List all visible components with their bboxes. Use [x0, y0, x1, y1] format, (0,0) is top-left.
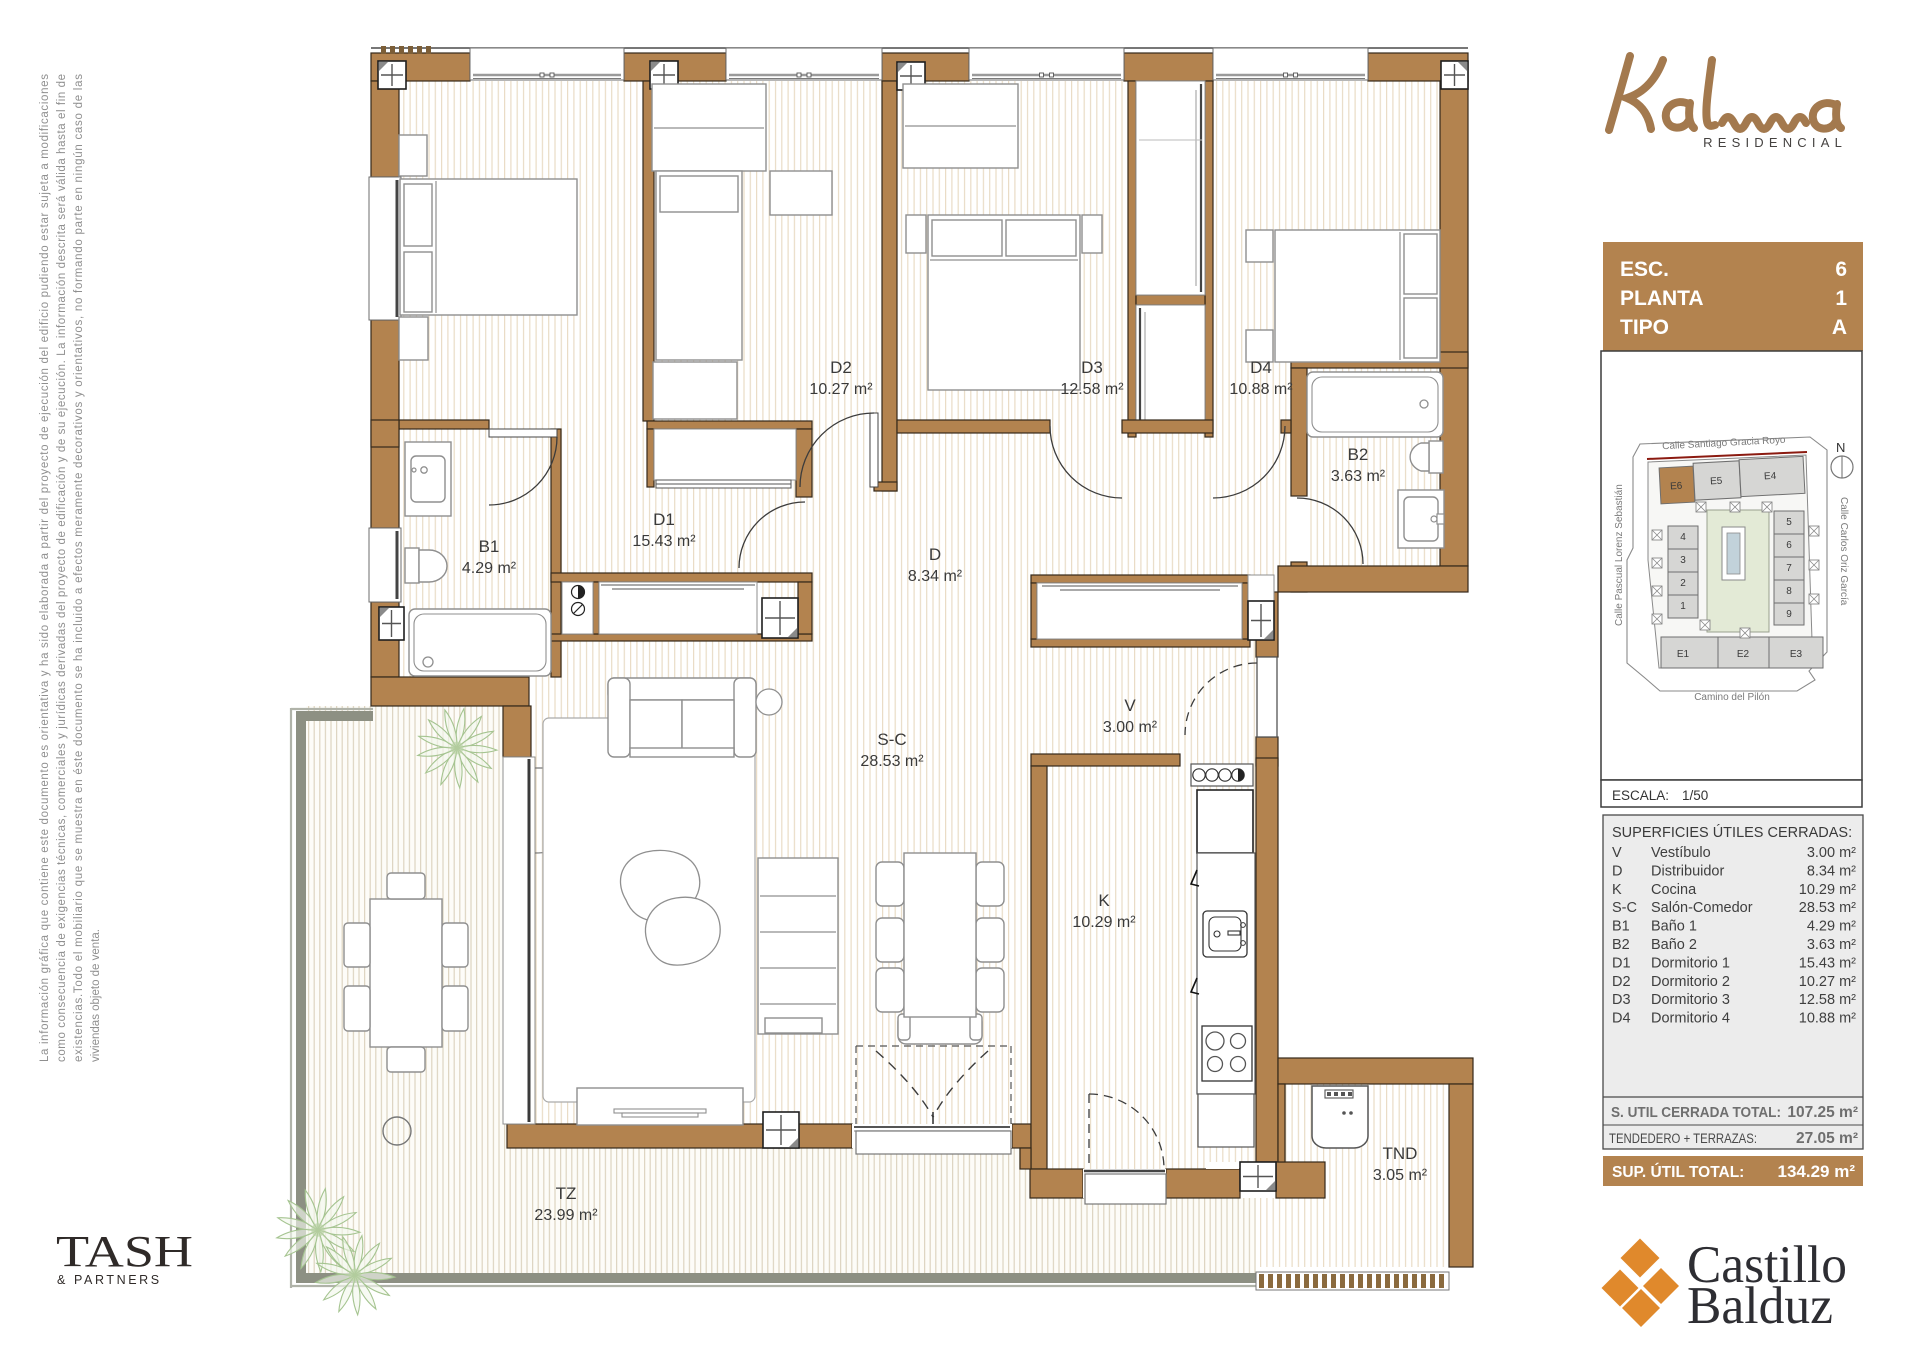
svg-text:Baño 2: Baño 2 — [1651, 937, 1697, 953]
svg-text:23.99 m²: 23.99 m² — [534, 1207, 598, 1224]
svg-text:10.88 m²: 10.88 m² — [1229, 381, 1293, 398]
svg-text:K: K — [1612, 882, 1622, 898]
svg-text:4.29 m²: 4.29 m² — [1807, 919, 1856, 935]
svg-text:107.25 m²: 107.25 m² — [1787, 1104, 1858, 1121]
svg-text:Cocina: Cocina — [1651, 882, 1697, 898]
svg-text:Dormitorio 4: Dormitorio 4 — [1651, 1011, 1730, 1027]
svg-text:D3: D3 — [1081, 358, 1103, 377]
svg-text:8.34 m²: 8.34 m² — [1807, 863, 1856, 879]
svg-text:3.00 m²: 3.00 m² — [1807, 845, 1856, 861]
svg-text:K: K — [1098, 891, 1110, 910]
svg-text:134.29 m²: 134.29 m² — [1778, 1162, 1856, 1181]
svg-text:D2: D2 — [830, 358, 852, 377]
svg-text:A: A — [1832, 316, 1847, 339]
svg-text:V: V — [1612, 845, 1622, 861]
svg-text:Balduz: Balduz — [1687, 1277, 1833, 1335]
svg-text:1: 1 — [1835, 287, 1847, 310]
svg-text:Salón-Comedor: Salón-Comedor — [1651, 900, 1753, 916]
svg-text:TENDEDERO + TERRAZAS:: TENDEDERO + TERRAZAS: — [1609, 1131, 1757, 1146]
svg-text:D1: D1 — [653, 510, 675, 529]
svg-text:9: 9 — [1786, 609, 1792, 620]
svg-text:ESC.: ESC. — [1620, 258, 1669, 281]
svg-text:8.34 m²: 8.34 m² — [908, 568, 963, 585]
svg-text:RESIDENCIAL: RESIDENCIAL — [1703, 135, 1847, 150]
svg-text:SUP. ÚTIL TOTAL:: SUP. ÚTIL TOTAL: — [1612, 1163, 1744, 1181]
svg-text:10.27 m²: 10.27 m² — [1799, 974, 1856, 990]
svg-text:E1: E1 — [1677, 649, 1690, 660]
svg-text:B1: B1 — [1612, 919, 1630, 935]
svg-text:& PARTNERS: & PARTNERS — [57, 1273, 162, 1287]
svg-text:D4: D4 — [1250, 358, 1272, 377]
svg-text:3.05 m²: 3.05 m² — [1373, 1167, 1428, 1184]
svg-text:4: 4 — [1680, 532, 1686, 543]
svg-text:S-C: S-C — [877, 730, 906, 749]
svg-text:E2: E2 — [1737, 649, 1750, 660]
svg-text:existencias.Todo el mobiliario: existencias.Todo el mobiliario que se mu… — [73, 74, 85, 1062]
svg-text:B2: B2 — [1348, 445, 1369, 464]
svg-text:Baño 1: Baño 1 — [1651, 919, 1697, 935]
svg-text:Dormitorio 1: Dormitorio 1 — [1651, 955, 1730, 971]
svg-text:S. UTIL CERRADA TOTAL:: S. UTIL CERRADA TOTAL: — [1611, 1105, 1781, 1121]
svg-text:12.58 m²: 12.58 m² — [1060, 381, 1124, 398]
svg-text:E3: E3 — [1790, 649, 1803, 660]
svg-text:B1: B1 — [479, 537, 500, 556]
svg-text:ESCALA:: ESCALA: — [1612, 788, 1669, 803]
svg-text:PLANTA: PLANTA — [1620, 287, 1704, 310]
svg-text:Dormitorio 2: Dormitorio 2 — [1651, 974, 1730, 990]
svg-text:15.43 m²: 15.43 m² — [1799, 955, 1856, 971]
svg-text:Calle Pascual Lorenz Sebastián: Calle Pascual Lorenz Sebastián — [1614, 484, 1625, 626]
svg-text:TND: TND — [1383, 1144, 1418, 1163]
svg-text:4.29 m²: 4.29 m² — [462, 560, 517, 577]
svg-text:1: 1 — [1680, 601, 1686, 612]
svg-text:N: N — [1836, 440, 1845, 455]
svg-text:28.53 m²: 28.53 m² — [860, 753, 924, 770]
svg-text:10.29 m²: 10.29 m² — [1799, 882, 1856, 898]
svg-text:La información gráfica que con: La información gráfica que contiene este… — [39, 74, 51, 1062]
svg-text:D4: D4 — [1612, 1011, 1631, 1027]
svg-text:7: 7 — [1786, 563, 1792, 574]
svg-text:Vestíbulo: Vestíbulo — [1651, 845, 1711, 861]
svg-text:Calle Carlos Oriz García: Calle Carlos Oriz García — [1838, 497, 1849, 606]
svg-text:TZ: TZ — [556, 1184, 577, 1203]
svg-text:Dormitorio 3: Dormitorio 3 — [1651, 992, 1730, 1008]
svg-text:6: 6 — [1835, 258, 1847, 281]
svg-text:8: 8 — [1786, 586, 1792, 597]
svg-text:viviendas objeto de venta.: viviendas objeto de venta. — [90, 929, 102, 1062]
svg-text:3: 3 — [1680, 555, 1686, 566]
svg-text:SUPERFICIES ÚTILES CERRADAS:: SUPERFICIES ÚTILES CERRADAS: — [1612, 824, 1852, 841]
svg-text:12.58 m²: 12.58 m² — [1799, 992, 1856, 1008]
svg-text:Camino del Pilón: Camino del Pilón — [1694, 692, 1770, 703]
svg-text:6: 6 — [1786, 540, 1792, 551]
svg-text:10.27 m²: 10.27 m² — [809, 381, 873, 398]
svg-text:27.05 m²: 27.05 m² — [1796, 1130, 1858, 1147]
svg-text:3.00 m²: 3.00 m² — [1103, 719, 1158, 736]
svg-text:TIPO: TIPO — [1620, 316, 1669, 339]
svg-text:E6: E6 — [1670, 481, 1683, 493]
svg-text:V: V — [1124, 696, 1136, 715]
svg-text:D: D — [929, 545, 941, 564]
svg-text:3.63 m²: 3.63 m² — [1331, 468, 1386, 485]
svg-text:1/50: 1/50 — [1682, 788, 1708, 803]
svg-text:Distribuidor: Distribuidor — [1651, 863, 1724, 879]
svg-text:TASH: TASH — [56, 1227, 193, 1276]
svg-text:S-C: S-C — [1612, 900, 1637, 916]
svg-text:D1: D1 — [1612, 955, 1631, 971]
svg-text:E5: E5 — [1710, 476, 1723, 488]
svg-text:D: D — [1612, 863, 1622, 879]
svg-text:D2: D2 — [1612, 974, 1631, 990]
svg-text:E4: E4 — [1764, 471, 1777, 483]
svg-text:10.29 m²: 10.29 m² — [1072, 914, 1136, 931]
svg-text:D3: D3 — [1612, 992, 1631, 1008]
svg-text:28.53 m²: 28.53 m² — [1799, 900, 1856, 916]
svg-text:B2: B2 — [1612, 937, 1630, 953]
svg-text:2: 2 — [1680, 578, 1686, 589]
svg-text:como consecuencia de exigencia: como consecuencia de exigencias técnicas… — [56, 74, 68, 1062]
svg-text:15.43 m²: 15.43 m² — [632, 533, 696, 550]
svg-text:10.88 m²: 10.88 m² — [1799, 1011, 1856, 1027]
svg-text:5: 5 — [1786, 517, 1792, 528]
svg-text:3.63 m²: 3.63 m² — [1807, 937, 1856, 953]
